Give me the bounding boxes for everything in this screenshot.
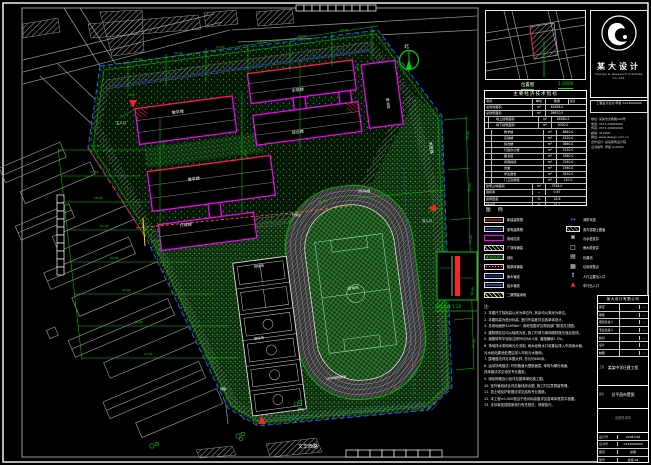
note-line: 8. 运动场地做法: 环形跑道为塑胶面层, 球场为硬化地面,	[484, 363, 596, 370]
top-scale-bar	[296, 5, 376, 11]
phase2-swatch	[484, 292, 504, 298]
location-map-drawing	[486, 11, 585, 79]
legend-label: 用地红线	[507, 236, 520, 241]
legend-item: ⊗污水检查井	[566, 234, 648, 243]
logo-cn-name: 某大设计	[591, 61, 647, 72]
titleblock-row: 设计号2008-036	[598, 433, 648, 441]
new-building-swatch	[484, 217, 504, 223]
dimension-label: 30.00	[467, 183, 472, 192]
drawing-label: J7	[411, 363, 415, 367]
note-line: 13. 未尽事宜按国家现行有关规范、规程执行。	[484, 402, 596, 409]
existing-building-swatch	[484, 226, 504, 232]
title-block-header: 某大设计有限公司	[598, 296, 648, 304]
rain-well-swatch: □	[566, 245, 580, 251]
grass-paving-swatch	[484, 264, 504, 270]
legend-item: 用地红线	[484, 234, 566, 243]
location-map-scale: 1:2000	[558, 82, 573, 87]
dimension-label: 9.00	[355, 64, 360, 71]
sewage-well-swatch: ⊗	[566, 235, 580, 241]
legend-label: 消防车道	[583, 217, 596, 222]
title-block: 某大设计有限公司 审定—审核—项目负责人—专业负责人—校对—设计—制图— 工程 …	[597, 295, 649, 463]
drawing-label: 绿化	[298, 406, 304, 411]
legend-label: 植草砖铺装	[507, 264, 523, 269]
drawing-label: 围墙	[220, 386, 226, 391]
legend-item: 广场砖铺装	[484, 243, 566, 252]
stamp-text: 出图专用章	[598, 415, 648, 420]
dimension-label: 6.00	[243, 150, 248, 157]
dimension-label: 15.00	[134, 57, 143, 61]
titleblock-row: 图号总施-01	[598, 457, 648, 463]
sign-row: 制图—	[598, 350, 648, 358]
sign-row: 项目负责人—	[598, 319, 648, 327]
project-name-box: 工程 某某中学迁建工程	[598, 365, 648, 386]
paving-swatch	[484, 245, 504, 251]
dimension-label: 27.00	[471, 339, 476, 348]
legend-label: 车行出入口	[583, 283, 599, 288]
water-pipe-swatch	[484, 282, 504, 288]
legend-label: 给水管线	[507, 283, 520, 288]
dimension-label: 15.00	[92, 144, 101, 148]
drawing-label: 围墙大样 1:20	[435, 303, 462, 309]
red-line-swatch	[484, 235, 504, 241]
dimension-label: 4.50	[128, 93, 135, 97]
drawing-label: 北	[404, 43, 409, 50]
sign-row: 专业负责人—	[598, 327, 648, 335]
drawing-name-box: 图名 总平面布置图	[598, 392, 648, 409]
bottom-scale-bar	[346, 450, 442, 457]
dimension-label: 30.00	[122, 288, 131, 292]
legend-label: 新建建筑物	[507, 217, 523, 222]
note-line: 6. 场地排水采用雨污分流制, 雨水经雨水口收集后排入市政雨水管,	[484, 343, 596, 350]
logo-box: 某大设计 Design & Research Institute Co.,Ltd…	[590, 10, 648, 98]
legend-item: □雨水检查井	[566, 243, 648, 252]
legend-label: 人行主要出入口	[583, 274, 605, 279]
entry-car-swatch: ▲	[566, 282, 580, 288]
logo-en-name: Design & Research Institute Co.,Ltd.	[591, 72, 647, 80]
stamp-box: 出图专用章	[598, 415, 648, 433]
legend-item: ▦垃圾收集点	[566, 262, 648, 271]
drawing-label: 主入口	[116, 120, 126, 125]
dimension-label: 24.00	[216, 45, 225, 49]
note-line: 7. 围墙做法详见本图大样, 总长约680米。	[484, 356, 596, 363]
dimension-label: 12.50	[90, 170, 99, 174]
dimension-label: 21.00	[174, 51, 183, 55]
note-line: 污水经化粪池处理后排入市政污水管网。	[484, 350, 596, 357]
sign-row: 审核—	[598, 312, 648, 320]
sign-row: 校对—	[598, 334, 648, 342]
rain-pipe-swatch	[484, 273, 504, 279]
indicator-table: 主要经济技术指标 项目 单位 数量 备注 总用地面积m²42658.0总建筑面积…	[484, 90, 587, 206]
dimension-label: 30.00	[465, 131, 470, 140]
drawing-name: 总平面布置图	[598, 392, 648, 398]
trash-swatch: ▦	[566, 264, 580, 270]
legend-item: ▤化粪池	[566, 253, 648, 262]
dimension-label: 24.00	[468, 235, 473, 244]
left-scale-bar	[57, 195, 64, 275]
dimension-label: 7.50	[161, 140, 166, 147]
note-line: 11. 挡土墙及护坡做法详见结构专业图纸。	[484, 389, 596, 396]
dimension-label: 30.00	[298, 34, 307, 38]
dimension-label: 18.00	[258, 40, 267, 44]
legend-item: 植草砖铺装	[484, 262, 566, 271]
drawing-label: 文华西路	[298, 443, 318, 450]
legend-item: 雨水管线	[484, 271, 566, 280]
legend-item: 二期预留用地	[484, 290, 566, 299]
cad-sheet: 15.0012.5018.0021.0024.0030.0036.0027.00…	[0, 0, 651, 465]
legend-title: 图 例	[486, 207, 649, 213]
legend-label: 污水检查井	[583, 236, 599, 241]
sign-row: 审定—	[598, 304, 648, 312]
project-name: 某某中学迁建工程	[598, 365, 648, 371]
north-arrow	[400, 51, 419, 70]
legend-label: 雨水管线	[507, 274, 520, 279]
legend-item: 给水管线	[484, 281, 566, 290]
drawing-label: J8	[393, 387, 398, 391]
note-line: 4. 建筑物定位均以轴线为准, 施工时请与单体图校核无误后放线。	[484, 330, 596, 337]
legend-label: 二期预留用地	[507, 292, 526, 297]
legend: 图 例 新建建筑物原有建筑物用地红线广场砖铺装绿化植草砖铺装雨水管线给水管线二期…	[484, 207, 649, 301]
legend-item: 沥青混凝土路面	[566, 224, 648, 233]
fire-lane-swatch: ↔	[566, 217, 580, 223]
legend-label: 广场砖铺装	[507, 245, 523, 250]
drawing-label: 自行车棚	[358, 188, 370, 193]
legend-label: 沥青混凝土路面	[583, 227, 605, 232]
drawing-label: 升旗台	[292, 212, 301, 217]
legend-item: 原有建筑物	[484, 224, 566, 233]
note-line: 具体做法详见相关专业图纸。	[484, 369, 596, 376]
note-line: 2. 本图标高为绝对标高, 室内外高差详见各单体设计。	[484, 317, 596, 324]
indicator-table-title: 主要经济技术指标	[485, 91, 586, 99]
dimension-label: 15.00	[340, 28, 349, 32]
drawing-label: 次入口	[422, 218, 432, 223]
location-map	[485, 10, 586, 80]
legend-item: 绿化	[484, 253, 566, 262]
note-line: 5. 道路转弯半径除注明外均为6.0米, 道路横坡1.5%。	[484, 336, 596, 343]
location-map-caption: 位置图	[521, 82, 534, 88]
asphalt-swatch	[566, 226, 580, 232]
legend-item: 新建建筑物	[484, 215, 566, 224]
entry-people-swatch: ⇧	[566, 273, 580, 279]
note-line: 12. 本工程±0.000相当于绝对标高值详见各单体首层平面图。	[484, 396, 596, 403]
note-line: 1. 本图尺寸除标高以米为单位外, 其余均以毫米为单位。	[484, 310, 596, 317]
notes-title: 注:	[484, 303, 596, 310]
legend-label: 原有建筑物	[507, 227, 523, 232]
dimension-label: 18.00	[94, 196, 103, 200]
dimension-label: 36.00	[134, 320, 143, 324]
design-notes: 注: 1. 本图尺寸除标高以米为单位外, 其余均以毫米为单位。2. 本图标高为绝…	[484, 303, 596, 463]
note-line: 3. 总用地面积42658m², 用地范围详见规划部门核发红线图。	[484, 323, 596, 330]
sign-row: 设计—	[598, 342, 648, 350]
legend-label: 雨水检查井	[583, 245, 599, 250]
legend-label: 化粪池	[583, 255, 593, 260]
note-line: 9. 绿化种植及小品详见园林绿化施工图。	[484, 376, 596, 383]
note-line: 10. 室外管线综合详见管线综合图, 施工时注意预留预埋。	[484, 383, 596, 390]
dimension-label: 24.00	[110, 256, 119, 260]
legend-item: ↔消防车道	[566, 215, 648, 224]
cert-box: 工程设计证书 甲级 A133000000	[590, 100, 648, 113]
legend-label: 垃圾收集点	[583, 264, 599, 269]
legend-label: 绿化	[507, 255, 513, 260]
titleblock-row: 图别总施	[598, 449, 648, 457]
titleblock-row: 证书号A133000000	[598, 441, 648, 449]
green-swatch	[484, 254, 504, 260]
dimension-label: 21.00	[100, 224, 109, 228]
logo-icon	[591, 11, 647, 55]
dimension-label: 27.00	[144, 352, 153, 356]
indicator-row: 绿地率%35.2	[485, 203, 586, 206]
logo-info-lines: 地址: 某某市文教路100号电话: 0571-00000000传真: 0571-…	[591, 117, 649, 149]
logo-info-line: 证书编号: 甲级 A10000	[591, 145, 649, 150]
legend-item: ▲车行出入口	[566, 281, 648, 290]
legend-item: ⇧人行主要出入口	[566, 271, 648, 280]
septic-swatch: ▤	[566, 254, 580, 260]
